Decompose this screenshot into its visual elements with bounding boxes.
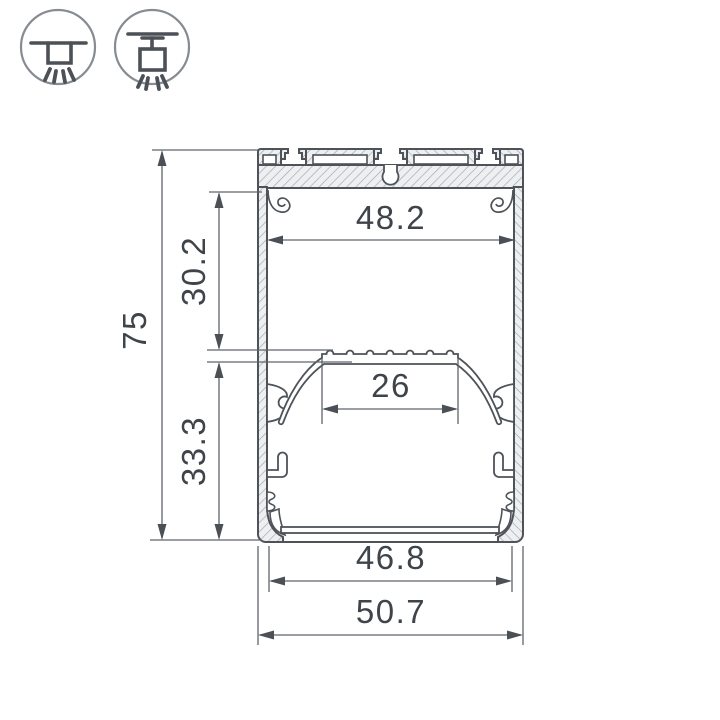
tab-hollow <box>263 155 276 164</box>
surface-mount-icon <box>21 10 95 84</box>
dimension-inner-width: 48.2 <box>267 199 515 245</box>
cover-hook <box>267 453 287 478</box>
slot-hook <box>281 149 288 159</box>
slot-hook <box>299 149 306 159</box>
corner-screw-boss <box>268 190 290 212</box>
slot-hook <box>374 149 381 159</box>
dimension-led-platform: 26 <box>322 358 458 424</box>
mounting-icons <box>21 10 189 89</box>
dim-label-75: 75 <box>116 310 153 350</box>
dimensions: 75 30.2 33.3 48.2 <box>116 150 523 645</box>
pendant-mount-icon <box>115 10 189 89</box>
icon-circle <box>21 10 95 84</box>
technical-drawing-canvas: 75 30.2 33.3 48.2 <box>0 0 720 720</box>
wall-nub <box>267 492 275 511</box>
dim-label-26: 26 <box>371 367 411 404</box>
tab-hollow <box>313 155 367 164</box>
dim-label-46-8: 46.8 <box>356 539 426 576</box>
dim-label-50-7: 50.7 <box>356 593 426 630</box>
dim-label-30-2: 30.2 <box>175 236 212 306</box>
dim-label-48-2: 48.2 <box>356 199 426 236</box>
screw-channel <box>383 165 399 185</box>
bottom-cover <box>281 527 499 533</box>
dim-label-33-3: 33.3 <box>175 416 212 486</box>
dimension-bottom-inner-width: 46.8 <box>269 539 512 592</box>
dimension-lower-cavity: 33.3 <box>175 362 224 540</box>
